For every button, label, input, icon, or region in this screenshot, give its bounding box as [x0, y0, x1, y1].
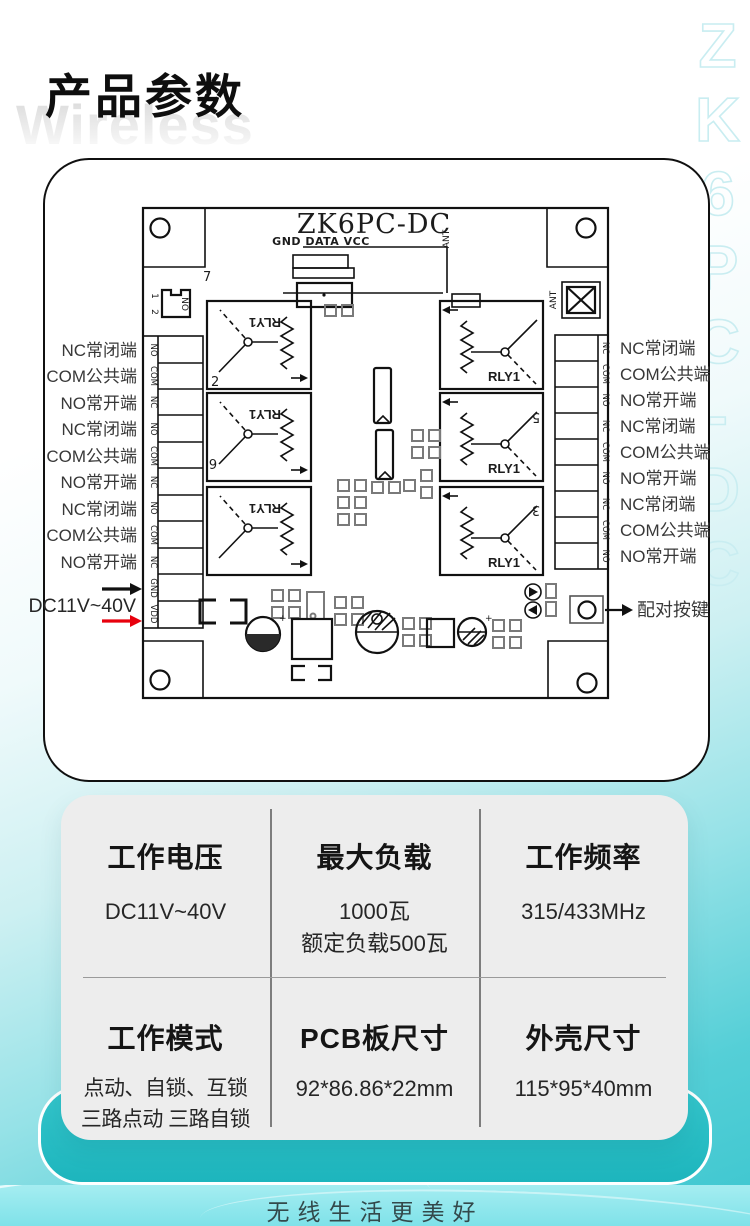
spec-value: 点动、自锁、互锁 — [61, 1073, 270, 1104]
spec-value: 1000瓦 — [270, 896, 479, 928]
spec-cell-load: 最大负载 1000瓦 额定负载500瓦 — [270, 840, 479, 960]
spec-value: 115*95*40mm — [479, 1073, 688, 1105]
spec-value: 三路点动 三路自锁 — [61, 1104, 270, 1135]
spec-value: DC11V~40V — [61, 896, 270, 928]
spec-value: 92*86.86*22mm — [270, 1073, 479, 1105]
spec-value: 额定负载500瓦 — [270, 928, 479, 960]
spec-cell-voltage: 工作电压 DC11V~40V — [61, 840, 270, 928]
footer-slogan: 无线生活更美好 — [0, 1193, 750, 1226]
spec-title: 最大负载 — [270, 840, 479, 876]
footer-band: 无线生活更美好 — [0, 1185, 750, 1226]
spec-table: 工作电压 DC11V~40V 最大负载 1000瓦 额定负载500瓦 工作频率 … — [61, 795, 688, 1140]
pcb-panel — [43, 158, 710, 782]
spec-value: 315/433MHz — [479, 896, 688, 928]
spec-cell-frequency: 工作频率 315/433MHz — [479, 840, 688, 928]
table-divider — [83, 977, 666, 978]
spec-cell-shell-size: 外壳尺寸 115*95*40mm — [479, 1021, 688, 1105]
spec-cell-pcb-size: PCB板尺寸 92*86.86*22mm — [270, 1021, 479, 1105]
spec-title: 工作模式 — [61, 1021, 270, 1057]
spec-title: 外壳尺寸 — [479, 1021, 688, 1057]
spec-cell-mode: 工作模式 点动、自锁、互锁 三路点动 三路自锁 — [61, 1021, 270, 1135]
spec-title: 工作电压 — [61, 840, 270, 876]
spec-title: 工作频率 — [479, 840, 688, 876]
spec-title: PCB板尺寸 — [270, 1021, 479, 1057]
page-title: 产品参数 — [45, 58, 245, 127]
